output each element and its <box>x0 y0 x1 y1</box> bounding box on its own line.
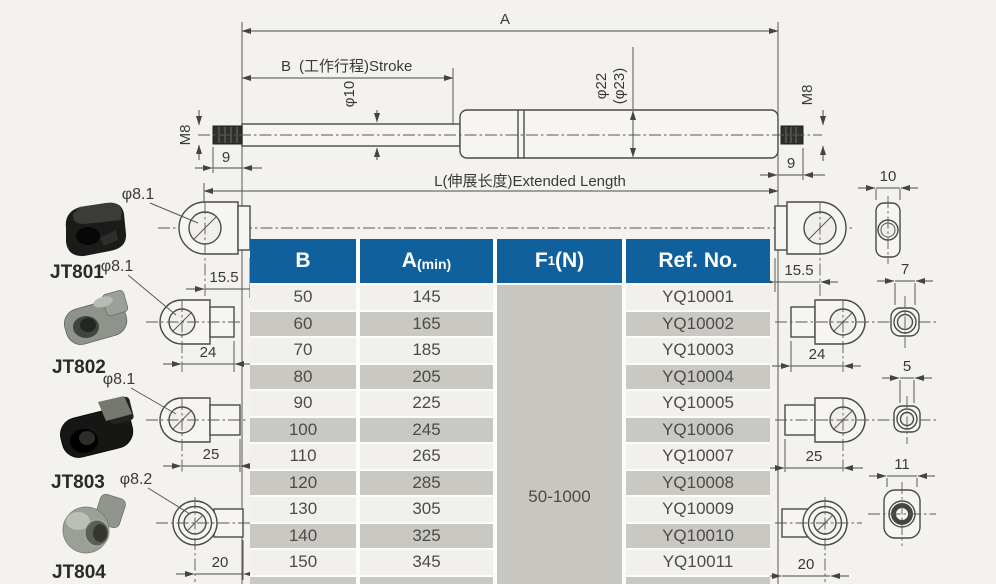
dim-24-left: 24 <box>200 344 217 361</box>
cell-b-partial <box>250 577 356 584</box>
cell-a: 305 <box>360 497 493 522</box>
f1-merged-cell: 50-1000 <box>497 285 622 584</box>
header-cell-b: B <box>250 239 356 283</box>
cell-a: 325 <box>360 524 493 549</box>
side-view-width-5: 5 <box>882 358 932 444</box>
dim-a-label: A <box>500 11 510 28</box>
rod-diameter-label: φ10 <box>341 81 358 107</box>
dim-b-stroke-label: (工作行程)Stroke <box>299 58 412 75</box>
fitting-photo-jt801 <box>66 203 126 256</box>
side-view-width-11: 11 <box>868 456 936 546</box>
cell-ref-partial <box>626 577 770 584</box>
cell-b: 130 <box>250 497 356 522</box>
dim-25-right: 25 <box>806 448 823 465</box>
cell-ref: YQ10005 <box>626 391 770 416</box>
cell-ref: YQ10003 <box>626 338 770 363</box>
left-ball-socket-view: 20 <box>156 497 262 582</box>
thread-label-left: M8 <box>177 125 194 146</box>
cell-b: 100 <box>250 418 356 443</box>
phi-label-2: φ8.1 <box>101 258 134 275</box>
phi-label-1: φ8.1 <box>122 186 155 203</box>
cell-b: 140 <box>250 524 356 549</box>
fitting-photo-jt802 <box>59 289 134 348</box>
cell-a: 245 <box>360 418 493 443</box>
dim-24-right: 24 <box>809 346 826 363</box>
fitting-label-jt802: JT802 <box>52 357 106 378</box>
dim-15-5-left: 15.5 <box>209 269 238 286</box>
cell-ref: YQ10008 <box>626 471 770 496</box>
cell-b: 70 <box>250 338 356 363</box>
cell-b: 50 <box>250 285 356 310</box>
header-cell-f1n: F1(N) <box>497 239 622 283</box>
header-cell-ref-no: Ref. No. <box>626 239 770 283</box>
dim-10-label: 10 <box>880 168 897 185</box>
datasheet-page: A B (工作行程)Stroke φ10 φ22 (φ23) M8 M8 9 9… <box>0 0 996 584</box>
cell-a: 285 <box>360 471 493 496</box>
cylinder-tube <box>460 110 778 158</box>
cell-a: 225 <box>360 391 493 416</box>
cell-ref: YQ10010 <box>626 524 770 549</box>
fitting-label-jt803: JT803 <box>51 472 105 493</box>
cell-b: 90 <box>250 391 356 416</box>
cell-a: 205 <box>360 365 493 390</box>
header-cell-a-min: A(min) <box>360 239 493 283</box>
dim-b-letter: B <box>281 58 291 75</box>
cell-b: 110 <box>250 444 356 469</box>
gas-spring-drawing <box>198 110 822 158</box>
dim-25-left: 25 <box>203 446 220 463</box>
dim-20-left: 20 <box>212 554 229 571</box>
cell-ref: YQ10009 <box>626 497 770 522</box>
dim-11-label: 11 <box>894 456 910 473</box>
fitting-photo-jt803 <box>55 396 140 461</box>
dim-20-right: 20 <box>798 556 815 573</box>
cell-a: 345 <box>360 550 493 575</box>
cell-a: 265 <box>360 444 493 469</box>
cell-ref: YQ10002 <box>626 312 770 337</box>
cell-b: 60 <box>250 312 356 337</box>
cell-a: 145 <box>360 285 493 310</box>
left-eyelet-view-3: 25 <box>146 398 260 472</box>
fitting-photo-jt804 <box>63 493 127 553</box>
cell-ref: YQ10006 <box>626 418 770 443</box>
tube-diameter-alt-label: (φ23) <box>611 68 628 104</box>
cell-b: 120 <box>250 471 356 496</box>
thread-label-right: M8 <box>799 85 816 106</box>
cell-a: 165 <box>360 312 493 337</box>
phi-label-4: φ8.2 <box>120 471 153 488</box>
extended-length-label: L(伸展长度)Extended Length <box>434 173 626 190</box>
cell-ref: YQ10007 <box>626 444 770 469</box>
cell-ref: YQ10001 <box>626 285 770 310</box>
cell-a: 185 <box>360 338 493 363</box>
cell-a-partial <box>360 577 493 584</box>
right-eyelet-view-1: 15.5 <box>757 202 846 298</box>
fitting-label-jt804: JT804 <box>52 562 106 583</box>
dim-9-left-label: 9 <box>222 149 230 166</box>
cell-b: 150 <box>250 550 356 575</box>
cell-ref: YQ10011 <box>626 550 770 575</box>
tube-diameter-label: φ22 <box>593 73 610 99</box>
side-view-width-7: 7 <box>877 261 933 348</box>
left-eyelet-view-2: 24 <box>146 300 252 372</box>
spec-table: B A(min) F1(N) Ref. No. 50-1000 50 145 Y… <box>250 239 770 584</box>
fitting-label-jt801: JT801 <box>50 262 104 283</box>
side-view-width-10: 10 <box>858 168 918 264</box>
cell-b: 80 <box>250 365 356 390</box>
dim-5-label: 5 <box>903 358 911 375</box>
cell-ref: YQ10004 <box>626 365 770 390</box>
dim-9-right-label: 9 <box>787 155 795 172</box>
dim-15-5-right: 15.5 <box>784 262 813 279</box>
f1-value: 50-1000 <box>497 487 622 507</box>
phi-label-3: φ8.1 <box>103 371 136 388</box>
dim-7-label: 7 <box>901 261 909 278</box>
